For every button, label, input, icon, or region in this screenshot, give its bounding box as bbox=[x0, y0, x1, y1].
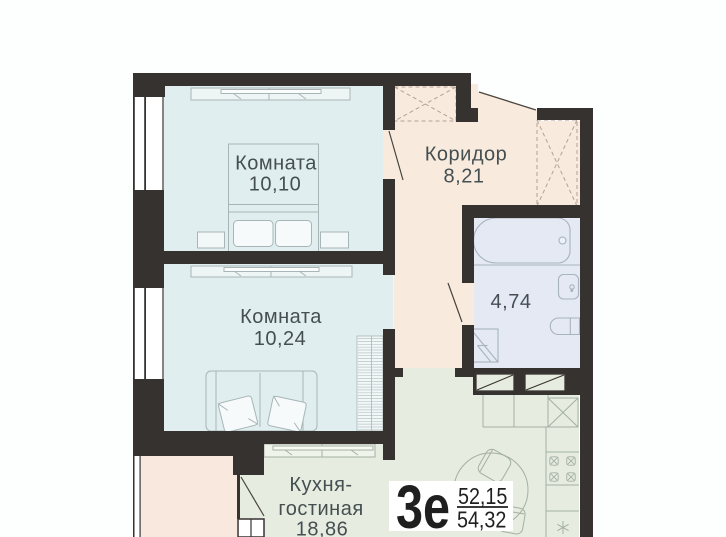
svg-text:3е: 3е bbox=[396, 473, 450, 537]
svg-text:гостиная: гостиная bbox=[278, 498, 363, 520]
svg-text:Коридор: Коридор bbox=[425, 144, 507, 166]
svg-text:8,21: 8,21 bbox=[444, 166, 485, 188]
svg-text:Кухня-: Кухня- bbox=[289, 474, 352, 496]
svg-text:Комната: Комната bbox=[240, 306, 322, 328]
svg-text:10,10: 10,10 bbox=[249, 174, 302, 196]
svg-text:54,32: 54,32 bbox=[457, 506, 506, 533]
svg-text:Комната: Комната bbox=[235, 153, 317, 175]
svg-text:18,86: 18,86 bbox=[296, 519, 349, 537]
svg-text:4,74: 4,74 bbox=[491, 291, 532, 313]
svg-text:10,24: 10,24 bbox=[254, 328, 307, 350]
